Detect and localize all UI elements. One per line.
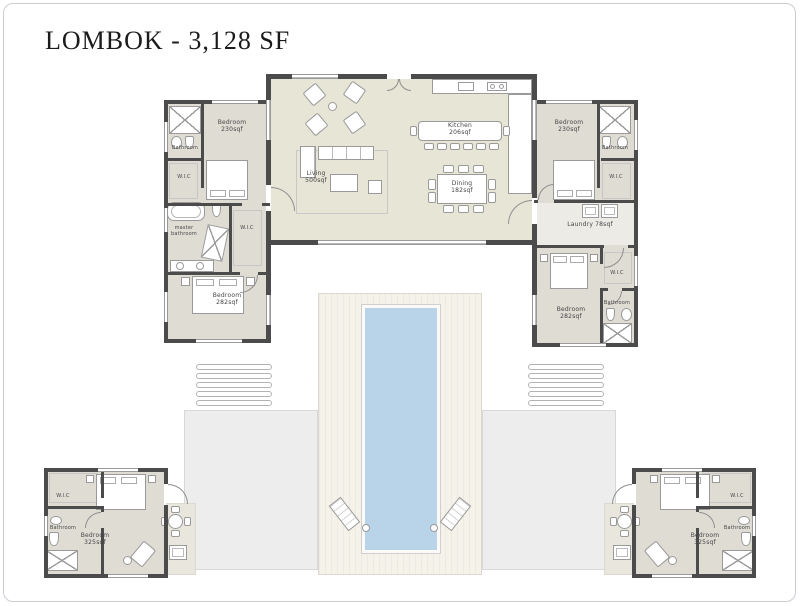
nightstand [86,475,94,483]
wall [696,506,756,509]
room-name: Bathroom [600,301,634,307]
wall [534,245,604,248]
window [662,468,702,472]
louver-slat [528,364,604,370]
side-table [328,102,337,111]
window [634,120,638,150]
wall [44,574,168,578]
nightstand [540,254,548,262]
patio-chair [171,530,180,537]
room-name: Bathroom [167,146,203,152]
vanity-sink [196,262,204,270]
window [164,292,168,322]
shower [169,106,201,134]
vanity-sink [176,262,184,270]
window [108,574,148,578]
wall [622,288,634,291]
kitchen-counter [432,79,532,94]
dining-chair [428,192,436,203]
louver-slat [528,373,604,379]
bed-pillow [196,279,214,286]
wall [101,509,104,512]
window [546,100,592,104]
bedroom-tl-label: Bedroom230sqf [203,120,261,134]
laundry-label: Laundry78sqf [548,222,632,229]
bed-pillow [229,190,245,197]
patio-chair [184,517,191,526]
wall [597,160,600,188]
sofa [318,146,374,160]
bathroom-sink [738,516,750,525]
kitchen-sink [458,82,474,91]
bar-stool [489,143,499,150]
patio-chair [620,506,629,513]
dining-label: Dining182sqf [437,181,487,195]
patio-table [617,514,632,529]
bed-pillow [121,477,137,484]
wall [168,158,201,161]
pool-side-table [362,524,370,532]
bar-stool [463,143,473,150]
patio-left [184,410,318,570]
window [212,100,258,104]
suite-left-bathroom-label: Bathroom [44,526,82,532]
patio-chair [610,517,617,526]
bed-pillow [557,190,573,197]
window [98,468,138,472]
nightstand [181,277,190,286]
wic-master-label: W.I.C [231,226,263,232]
kitchen-label: Kitchen206sqf [432,123,488,137]
wic-shelving [169,163,198,199]
suite-left-wic-label: W.I.C [46,494,80,500]
wall [164,272,240,275]
louver-slat [196,373,272,379]
room-name: master bathroom [166,226,202,238]
window [652,574,692,578]
wall [696,509,699,512]
ottoman [123,556,132,565]
master-bathroom-label: master bathroom [166,226,202,238]
window [266,100,271,140]
room-area: 78sqf [595,222,613,229]
bathroom-tl-label: Bathroom [167,146,203,152]
wall [229,206,232,272]
room-area: 325sqf [66,540,124,547]
side-table [368,180,382,194]
wall [628,245,638,248]
wall [411,74,537,79]
louver-slat [528,400,604,406]
patio-chair [171,506,180,513]
bar-stool [503,126,510,136]
wall [484,240,537,245]
wall [554,200,638,203]
dryer [601,204,618,218]
bar-stool [476,143,486,150]
dining-chair [488,192,496,203]
wall [164,468,168,484]
living-label: Living500sqf [295,171,337,185]
suite-right-porch [604,503,634,575]
bar-stool [424,143,434,150]
room-name: W.I.C [231,226,263,232]
suite-left-porch [166,503,196,575]
room-name: W.I.C [46,494,80,500]
bar-stool [437,143,447,150]
suite-right-bathroom-label: Bathroom [718,526,756,532]
dining-chair [473,205,484,213]
suite-right-bedroom-label: Bedroom325sqf [676,533,734,547]
dining-chair [443,165,454,173]
wic-br-label: W.I.C [602,271,632,277]
room-name: Bathroom [597,146,633,152]
window [266,295,271,325]
cooktop-burner [499,84,504,89]
bathroom-tr-label: Bathroom [597,146,633,152]
swimming-pool [362,305,440,553]
wall [534,200,538,203]
wic-tl-label: W.I.C [168,175,200,181]
shower [599,106,631,134]
room-area: 230sqf [540,127,598,134]
room-name: W.I.C [720,494,754,500]
window [196,339,242,343]
bathroom-sink [621,308,632,321]
wic-shelving [233,210,262,266]
bed-pillow [576,190,592,197]
room-name: Bathroom [44,526,82,532]
patio-right [482,410,616,570]
wall [632,468,636,484]
wall [164,505,168,578]
room-area: 282sqf [198,300,256,307]
wall [266,240,320,245]
wall [632,574,756,578]
bedroom-br-label: Bedroom282sqf [542,307,600,321]
nightstand [650,475,658,483]
wic-shelving [602,163,631,199]
wall [262,203,270,206]
patio-shelf [169,545,187,560]
window [318,240,486,245]
louver-slat [196,400,272,406]
suite-left-bedroom-label: Bedroom325sqf [66,533,124,547]
wall [600,291,603,347]
plan-title: LOMBOK - 3,128 SF [45,26,290,56]
washer [582,204,599,218]
room-name: W.I.C [600,175,632,181]
room-area: 282sqf [542,314,600,321]
ottoman [668,556,677,565]
wall [101,468,104,498]
bed-pillow [664,477,680,484]
room-name: Bathroom [718,526,756,532]
patio-chair [620,530,629,537]
window [292,74,338,79]
patio-table [168,514,183,529]
window [560,343,606,347]
bed-pillow [219,279,237,286]
shower [722,550,754,571]
bedroom-tr-label: Bedroom230sqf [540,120,598,134]
cooktop-burner [490,84,495,89]
window [532,100,537,140]
shower [46,550,78,571]
room-area: 500sqf [295,178,337,185]
room-area: 230sqf [203,127,261,134]
dining-chair [458,165,469,173]
dining-chair [473,165,484,173]
louver-slat [196,364,272,370]
wall [266,245,271,343]
wall [258,272,270,275]
wall [632,505,636,578]
bathroom-br-label: Bathroom [600,301,634,307]
room-name: W.I.C [168,175,200,181]
dining-chair [428,179,436,190]
wall [601,158,634,161]
louver-slat [196,391,272,397]
bed-pillow [210,190,226,197]
room-area: 206sqf [432,130,488,137]
wall [201,160,204,188]
bathroom-sink [50,516,62,525]
dining-chair [443,205,454,213]
bedroom-bl-label: Bedroom282sqf [198,293,256,307]
wic-tr-label: W.I.C [600,175,632,181]
wall [696,468,699,498]
window [532,295,537,325]
nightstand [148,475,156,483]
bed-pillow [553,256,567,263]
room-name: Laundry [567,222,593,229]
wall [44,506,104,509]
suite-right-wic-label: W.I.C [720,494,754,500]
patio-shelf [613,545,631,560]
dining-chair [488,179,496,190]
room-area: 182sqf [437,188,487,195]
room-area: 325sqf [676,540,734,547]
nightstand [590,254,598,262]
window [634,256,638,286]
wall [600,248,603,264]
room-name: W.I.C [602,271,632,277]
kitchen-tall-counter [508,94,532,194]
nightstand [712,475,720,483]
bed-pillow [570,256,584,263]
pool-side-table [430,524,438,532]
bar-stool [450,143,460,150]
louver-slat [196,382,272,388]
dining-chair [458,205,469,213]
floorplan: LOMBOK - 3,128 SF [0,0,800,606]
louver-slat [528,382,604,388]
louver-slat [528,391,604,397]
shower [603,323,632,344]
bar-stool [410,126,417,136]
